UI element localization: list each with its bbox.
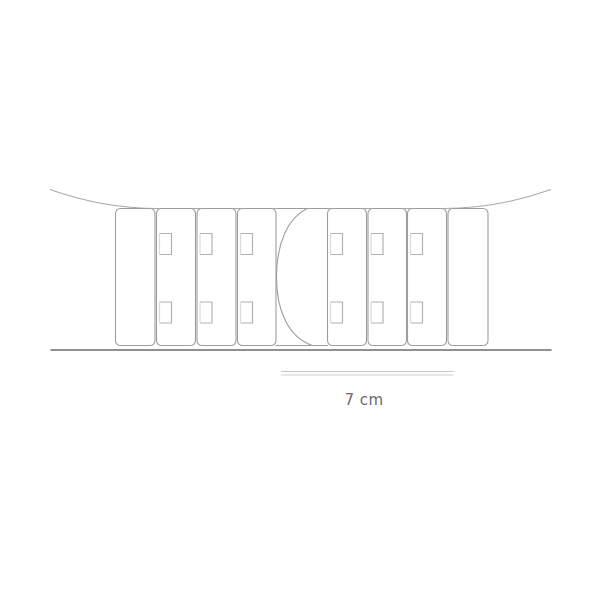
center-loop [276,209,329,346]
measurement-label: 7 cm [344,391,383,409]
band-segments [116,209,489,346]
segment-outline [197,209,236,346]
band-segment [448,209,488,346]
segment-outline [408,209,447,346]
drape-curve [50,190,551,209]
segment-outline [328,209,367,346]
segment-outline [238,209,277,346]
segment-outline [368,209,407,346]
band-segment [238,209,277,346]
segment-outline [157,209,196,346]
band-extender-diagram: 7 cm [0,0,601,601]
band-segment [197,209,236,346]
band-segment [408,209,447,346]
illustration-page: 7 cm [0,0,601,601]
band-segment [116,209,156,346]
band-segment [328,209,367,346]
band-segment [157,209,196,346]
segment-outline [116,209,156,346]
loop-curve [277,209,313,346]
segment-outline [448,209,488,346]
band-segment [368,209,407,346]
scale-bar [281,372,454,376]
